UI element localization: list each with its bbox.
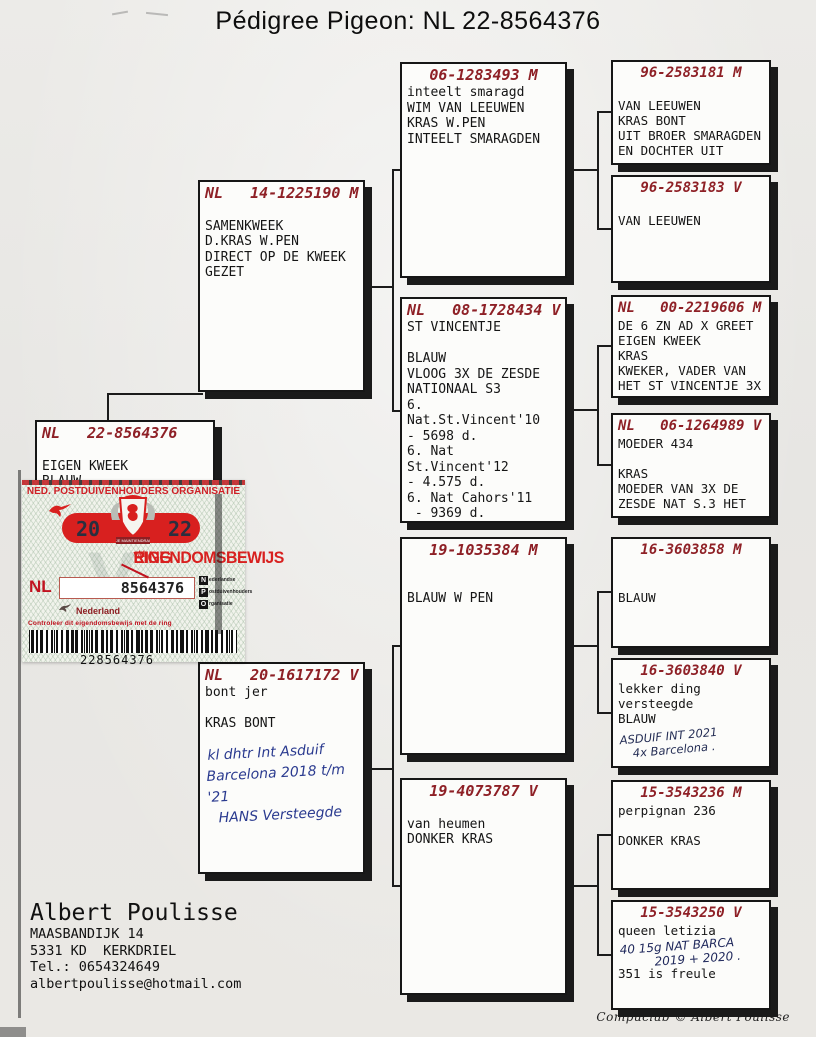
pedigree-box-dam: NL 20-1617172 V bont jer KRAS BONT kl dh…: [198, 662, 365, 874]
text-line: bont jer: [205, 685, 358, 701]
ring-number: NL 08-1728434 V: [407, 301, 560, 320]
text-line: DONKER KRAS: [618, 833, 764, 848]
text-line: EN DOCHTER UIT: [618, 143, 764, 158]
pedigree-box-g4-4: NL 06-1264989 V MOEDER 434 KRASMOEDER VA…: [611, 413, 771, 518]
ownership-stamp: NED. POSTDUIVENHOUDERS ORGANISATIE V 20 …: [22, 480, 245, 662]
npo-letter: P: [199, 588, 208, 597]
stamp-country-code: NL: [29, 577, 52, 597]
pedigree-box-g4-1: 96-2583181 M VAN LEEUWENKRAS BONTUIT BRO…: [611, 60, 771, 165]
text-line: UIT BROER SMARAGDEN: [618, 128, 764, 143]
text-line: albertpoulisse@hotmail.com: [30, 976, 241, 993]
text-line: KRAS W.PEN: [407, 116, 560, 132]
pedigree-connector: [567, 169, 597, 171]
pedigree-connector: [567, 885, 597, 887]
pedigree-box-g4-6: 16-3603840 V lekker dingversteegdeBLAUW …: [611, 658, 771, 768]
pedigree-connector: [567, 409, 597, 411]
stamp-year-right: 22: [168, 517, 192, 541]
stamp-ring-number: 8564376: [60, 578, 194, 598]
text-line: [618, 83, 764, 98]
stamp-perforation-edge: [22, 480, 245, 485]
text-line: 6. Nat Cahors'11: [407, 491, 560, 507]
ring-number: 16-3603858 M: [618, 541, 764, 560]
barcode-number: 228564376: [22, 653, 212, 667]
box-body: inteelt smaragdWIM VAN LEEUWENKRAS W.PEN…: [407, 85, 560, 147]
pedigree-box-sire-dam: NL 08-1728434 V ST VINCENTJE BLAUWVLOOG …: [400, 297, 567, 523]
stamp-year-left: 20: [76, 517, 100, 541]
text-line: versteegde: [618, 696, 764, 711]
box-body: VAN LEEUWENKRAS BONTUIT BROER SMARAGDENE…: [618, 83, 764, 158]
text-line: [42, 443, 208, 459]
text-line: KRAS: [618, 466, 764, 481]
box-body: bont jer KRAS BONT: [205, 685, 358, 732]
text-line: HET ST VINCENTJE 3X: [618, 378, 764, 393]
text-line: [407, 801, 560, 817]
text-line: MOEDER VAN 3X DE: [618, 481, 764, 496]
text-line: KRAS: [618, 348, 764, 363]
text-line: 6.: [407, 398, 560, 414]
ring-number: NL 14-1225190 M: [205, 184, 358, 203]
pedigree-connector: [365, 286, 392, 288]
box-body: lekker dingversteegdeBLAUW: [618, 681, 764, 726]
text-line: VAN LEEUWEN: [618, 98, 764, 113]
text-line: [618, 198, 764, 213]
text-line: EIGEN KWEEK: [618, 333, 764, 348]
ring-number: 06-1283493 M: [407, 66, 560, 85]
text-line: St.Vincent'12: [407, 460, 560, 476]
text-line: KWEKER, VADER VAN: [618, 363, 764, 378]
text-line: - 9369 d.: [407, 506, 560, 522]
npo-letter: O: [199, 600, 208, 609]
stamp-control-text: Controleer dit eigendomsbewijs met de ri…: [28, 620, 172, 627]
text-line: BLAUW W PEN: [407, 591, 560, 607]
pedigree-connector: [597, 111, 599, 230]
text-line: van heumen: [407, 817, 560, 833]
pedigree-connector: [392, 645, 394, 887]
pedigree-box-g4-7: 15-3543236 M perpignan 236 DONKER KRAS: [611, 780, 771, 890]
text-line: DIRECT OP DE KWEEK: [205, 250, 358, 266]
box-body: VAN LEEUWEN: [618, 198, 764, 228]
pedigree-box-dam-dam: 19-4073787 V van heumenDONKER KRAS: [400, 778, 567, 995]
pedigree-connector: [567, 645, 597, 647]
pedigree-connector: [597, 591, 599, 714]
pigeon-icon: [58, 602, 72, 613]
text-line: [205, 203, 358, 219]
text-line: [205, 701, 358, 717]
box-body: BLAUW: [618, 560, 764, 605]
scan-edge-artifact: [0, 1027, 26, 1037]
ring-number: 96-2583181 M: [618, 64, 764, 83]
stamp-country-label: Nederland: [76, 606, 120, 616]
handwriting-line: Barcelona 2018 t/m '21: [206, 759, 359, 809]
stamp-motto: JE MAINTIENDRAI: [116, 538, 150, 543]
text-line: [618, 451, 764, 466]
text-line: ZESDE NAT S.3 HET: [618, 496, 764, 511]
ring-number: NL 06-1264989 V: [618, 417, 764, 436]
barcode: [26, 630, 240, 653]
text-line: [618, 575, 764, 590]
text-line: GEZET: [205, 265, 358, 281]
npo-letter: N: [199, 576, 208, 585]
stamp-title-end: RING: [134, 549, 172, 568]
text-line: 5331 KD KERKDRIEL: [30, 943, 241, 960]
pedigree-box-g4-5: 16-3603858 M BLAUW: [611, 537, 771, 648]
text-line: perpignan 236: [618, 803, 764, 818]
box-body: ST VINCENTJE BLAUWVLOOG 3X DE ZESDENATIO…: [407, 320, 560, 522]
text-line: 6. Nat: [407, 444, 560, 460]
box-body: DE 6 ZN AD X GREETEIGEN KWEEKKRASKWEKER,…: [618, 318, 764, 393]
scan-artifact-bar: [215, 494, 222, 634]
text-line: inteelt smaragd: [407, 85, 560, 101]
handwritten-note: ASDUIF INT 20214x Barcelona .: [619, 721, 765, 761]
box-body: perpignan 236 DONKER KRAS: [618, 803, 764, 848]
pedigree-box-g4-3: NL 00-2219606 M DE 6 ZN AD X GREETEIGEN …: [611, 295, 771, 398]
ring-number: 16-3603840 V: [618, 662, 764, 681]
text-line: Nat.St.Vincent'10: [407, 413, 560, 429]
box-body: SAMENKWEEKD.KRAS W.PENDIRECT OP DE KWEEK…: [205, 203, 358, 281]
handwritten-note: kl dhtr Int AsduifBarcelona 2018 t/m '21…: [207, 738, 360, 830]
pedigree-box-sire-sire: 06-1283493 M inteelt smaragdWIM VAN LEEU…: [400, 62, 567, 278]
pedigree-connector: [392, 169, 394, 412]
text-line: WIM VAN LEEUWEN: [407, 101, 560, 117]
ring-number: 19-1035384 M: [407, 541, 560, 560]
ring-number: 15-3543236 M: [618, 784, 764, 803]
box-body: van heumenDONKER KRAS: [407, 801, 560, 848]
ring-number: 19-4073787 V: [407, 782, 560, 801]
pedigree-box-dam-sire: 19-1035384 M BLAUW W PEN: [400, 537, 567, 755]
text-line: BLAUW: [407, 351, 560, 367]
text-line: [407, 560, 560, 576]
ring-number-field: 8564376: [59, 577, 195, 599]
owner-block: Albert Poulisse MAASBANDIJK 145331 KD KE…: [30, 900, 241, 992]
text-line: KRAS BONT: [618, 113, 764, 128]
owner-address: MAASBANDIJK 145331 KD KERKDRIELTel.: 065…: [30, 926, 241, 992]
pedigree-box-g4-2: 96-2583183 V VAN LEEUWEN: [611, 175, 771, 283]
text-line: [407, 336, 560, 352]
owner-name: Albert Poulisse: [30, 900, 241, 926]
pedigree-connector: [107, 393, 203, 395]
pedigree-connector: [597, 834, 599, 956]
text-line: MAASBANDIJK 14: [30, 926, 241, 943]
text-line: KRAS BONT: [205, 716, 358, 732]
pedigree-connector: [107, 393, 109, 421]
lion-crest-icon: JE MAINTIENDRAI: [108, 492, 158, 548]
pedigree-connector: [597, 345, 599, 466]
pedigree-box-g4-8: 15-3543250 V queen letizia 40 15g NAT BA…: [611, 900, 771, 1010]
text-line: DONKER KRAS: [407, 832, 560, 848]
text-line: [618, 560, 764, 575]
text-line: Tel.: 0654324649: [30, 959, 241, 976]
text-line: lekker ding: [618, 681, 764, 696]
text-line: BLAUW: [618, 590, 764, 605]
ring-number: 15-3543250 V: [618, 904, 764, 923]
text-line: [407, 576, 560, 592]
software-credit: Compuclub © Albert Poulisse: [596, 1010, 790, 1024]
ring-number: NL 00-2219606 M: [618, 299, 764, 318]
text-line: INTEELT SMARAGDEN: [407, 132, 560, 148]
box-body: BLAUW W PEN: [407, 560, 560, 607]
ring-number: NL 22-8564376: [42, 424, 208, 443]
text-line: NATIONAAL S3: [407, 382, 560, 398]
npo-word: ederlandse: [209, 577, 235, 583]
pedigree-document: Pédigree Pigeon: NL 22-8564376 NL 22-856…: [0, 0, 816, 1037]
text-line: VLOOG 3X DE ZESDE: [407, 367, 560, 383]
text-line: - 5698 d.: [407, 429, 560, 445]
text-line: [618, 818, 764, 833]
scan-edge-artifact: [18, 470, 21, 1018]
box-body: MOEDER 434 KRASMOEDER VAN 3X DEZESDE NAT…: [618, 436, 764, 511]
text-line: SAMENKWEEK: [205, 219, 358, 235]
pedigree-connector: [365, 768, 392, 770]
text-line: VAN LEEUWEN: [618, 213, 764, 228]
text-line: MOEDER 434: [618, 436, 764, 451]
pedigree-box-sire: NL 14-1225190 M SAMENKWEEKD.KRAS W.PENDI…: [198, 180, 365, 392]
ring-number: NL 20-1617172 V: [205, 666, 358, 685]
text-line: EIGEN KWEEK: [42, 459, 208, 475]
text-line: D.KRAS W.PEN: [205, 234, 358, 250]
text-line: ST VINCENTJE: [407, 320, 560, 336]
text-line: DE 6 ZN AD X GREET: [618, 318, 764, 333]
ring-number: 96-2583183 V: [618, 179, 764, 198]
text-line: - 4.575 d.: [407, 475, 560, 491]
